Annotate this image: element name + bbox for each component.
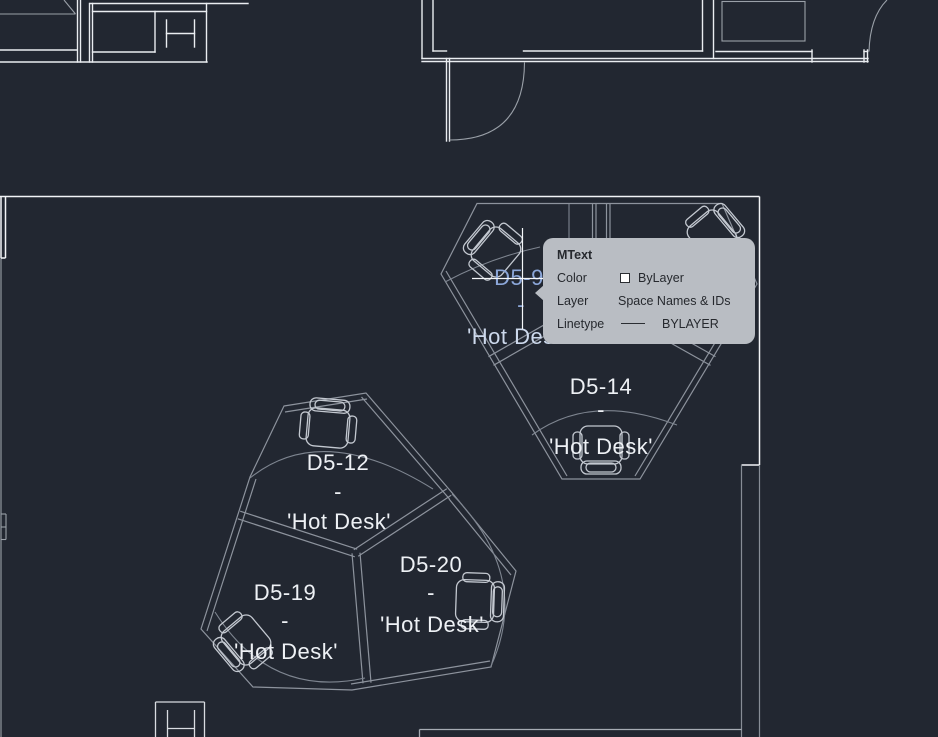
door-swing-top-right[interactable] bbox=[869, 0, 887, 52]
tooltip-pointer bbox=[535, 285, 544, 301]
tooltip-layer-value: Space Names & IDs bbox=[618, 294, 731, 308]
space-id[interactable]: D5-12 bbox=[307, 450, 369, 475]
mtext-label-d5-19[interactable]: D5-19 - 'Hot Desk' bbox=[234, 580, 338, 664]
space-separator[interactable]: - bbox=[427, 580, 435, 605]
space-id[interactable]: D5-20 bbox=[400, 552, 462, 577]
room-outline-top-right[interactable] bbox=[722, 2, 805, 42]
space-id[interactable]: D5-19 bbox=[254, 580, 316, 605]
tooltip-color-value: ByLayer bbox=[638, 271, 684, 285]
mtext-label-d5-14[interactable]: D5-14 - 'Hot Desk' bbox=[549, 374, 653, 459]
door-swing-top-middle[interactable] bbox=[447, 59, 525, 142]
space-separator[interactable]: - bbox=[334, 479, 342, 504]
space-name[interactable]: 'Hot Desk' bbox=[234, 639, 338, 664]
column-symbol-top-left[interactable] bbox=[167, 20, 195, 47]
column-symbol-bottom-left[interactable] bbox=[156, 702, 205, 737]
entity-rollover-tooltip: MText Color ByLayer Layer Space Names & … bbox=[543, 238, 755, 344]
tooltip-entity-type: MText bbox=[557, 247, 741, 264]
linetype-line-icon bbox=[621, 323, 645, 324]
tooltip-linetype-label: Linetype bbox=[557, 317, 618, 331]
space-separator[interactable]: - bbox=[597, 397, 605, 422]
space-separator[interactable]: - bbox=[517, 292, 525, 317]
tooltip-row-linetype: Linetype BYLAYER bbox=[557, 312, 741, 335]
tooltip-row-color: Color ByLayer bbox=[557, 266, 741, 289]
cad-viewport[interactable]: D5-9 - 'Hot Desk' D5-14 - 'Hot Desk' D5-… bbox=[0, 0, 938, 737]
space-name[interactable]: 'Hot Desk' bbox=[380, 612, 484, 637]
mtext-label-d5-12[interactable]: D5-12 - 'Hot Desk' bbox=[287, 450, 391, 534]
color-swatch-icon bbox=[620, 273, 630, 283]
wall-lines-top-left[interactable] bbox=[0, 0, 248, 62]
tooltip-linetype-value: BYLAYER bbox=[662, 317, 719, 331]
space-id[interactable]: D5-14 bbox=[570, 374, 632, 399]
tooltip-layer-label: Layer bbox=[557, 294, 618, 308]
drawing-canvas[interactable]: D5-9 - 'Hot Desk' D5-14 - 'Hot Desk' D5-… bbox=[0, 0, 938, 737]
wall-lines-top[interactable] bbox=[422, 0, 868, 62]
space-separator[interactable]: - bbox=[281, 608, 289, 633]
tooltip-row-layer: Layer Space Names & IDs bbox=[557, 289, 741, 312]
tooltip-color-label: Color bbox=[557, 271, 618, 285]
mtext-label-d5-20[interactable]: D5-20 - 'Hot Desk' bbox=[380, 552, 484, 637]
space-name[interactable]: 'Hot Desk' bbox=[287, 509, 391, 534]
space-name[interactable]: 'Hot Desk' bbox=[549, 434, 653, 459]
